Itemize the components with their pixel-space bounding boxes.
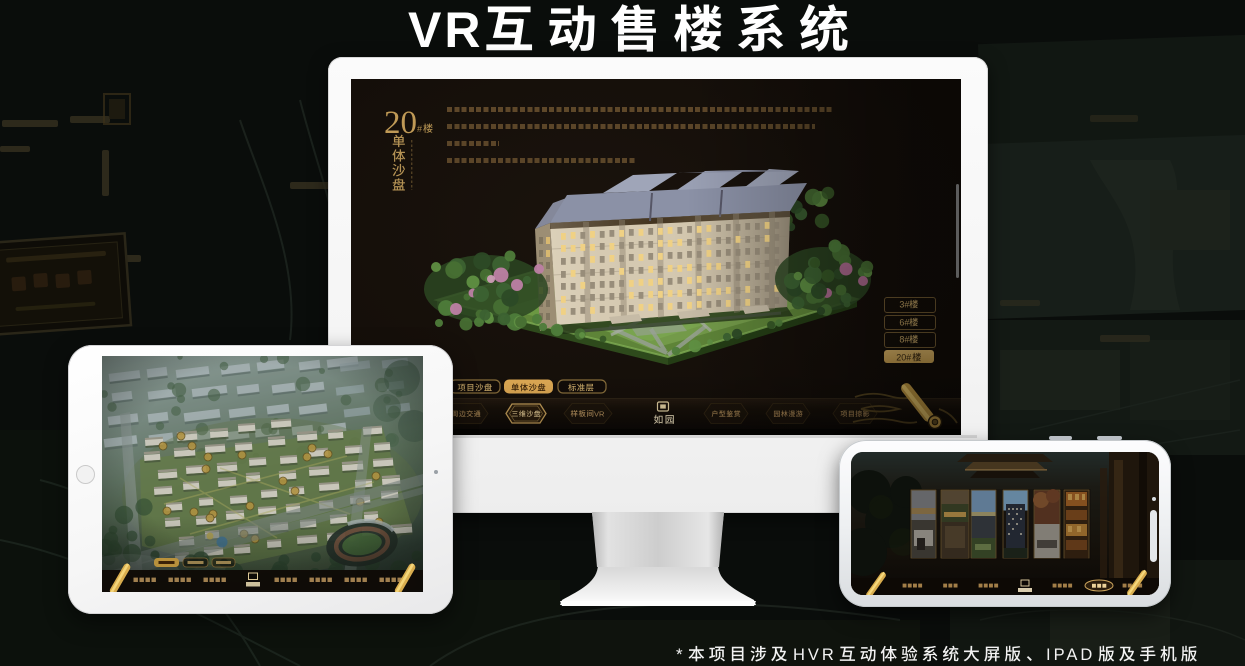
svg-text:HVR: HVR (793, 646, 837, 664)
svg-text:VR: VR (594, 409, 605, 418)
svg-text:#: # (417, 124, 422, 134)
svg-text:IPAD: IPAD (1046, 646, 1095, 664)
svg-text:*: * (676, 645, 683, 664)
svg-text:20#: 20# (896, 352, 911, 362)
svg-text:6#: 6# (899, 317, 909, 327)
svg-text:VR: VR (408, 2, 483, 58)
svg-text:8#: 8# (899, 335, 909, 345)
svg-text:3#: 3# (899, 300, 909, 310)
